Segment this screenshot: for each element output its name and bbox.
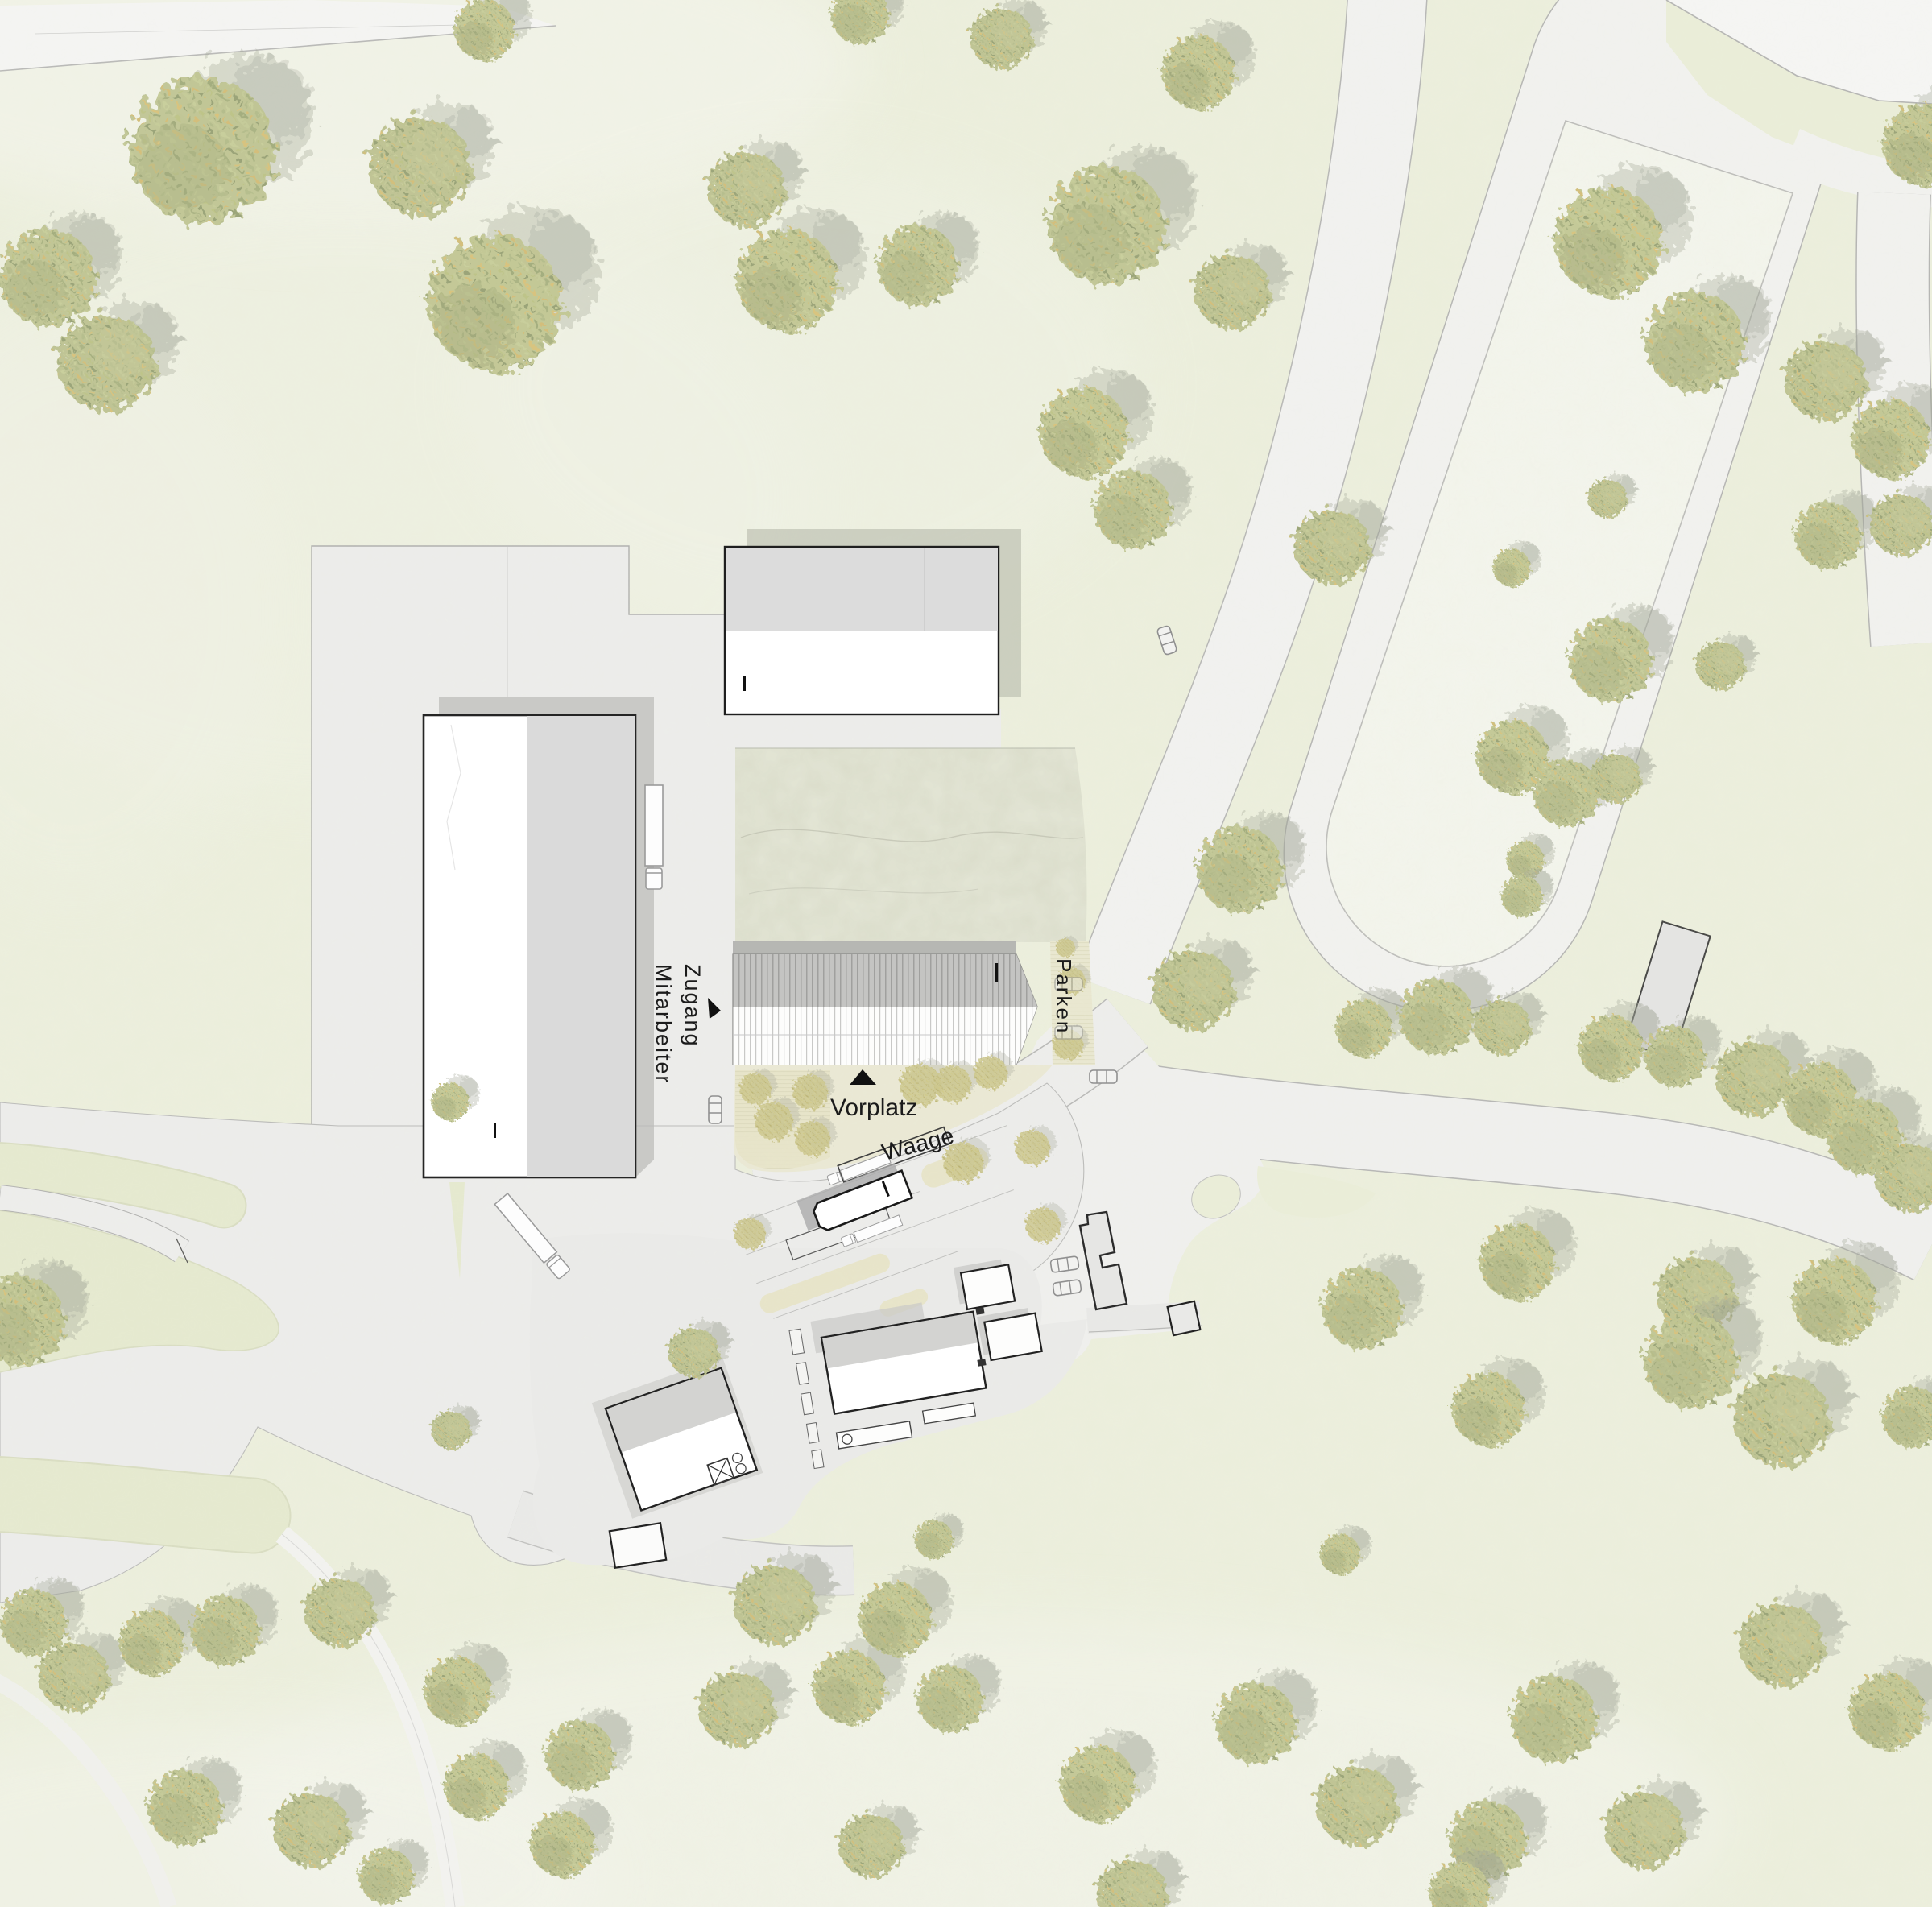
svg-text:Vorplatz: Vorplatz xyxy=(830,1094,917,1121)
svg-text:Parken: Parken xyxy=(1052,958,1076,1034)
svg-text:Mitarbeiter: Mitarbeiter xyxy=(652,964,676,1085)
svg-text:Zugang: Zugang xyxy=(681,964,705,1048)
